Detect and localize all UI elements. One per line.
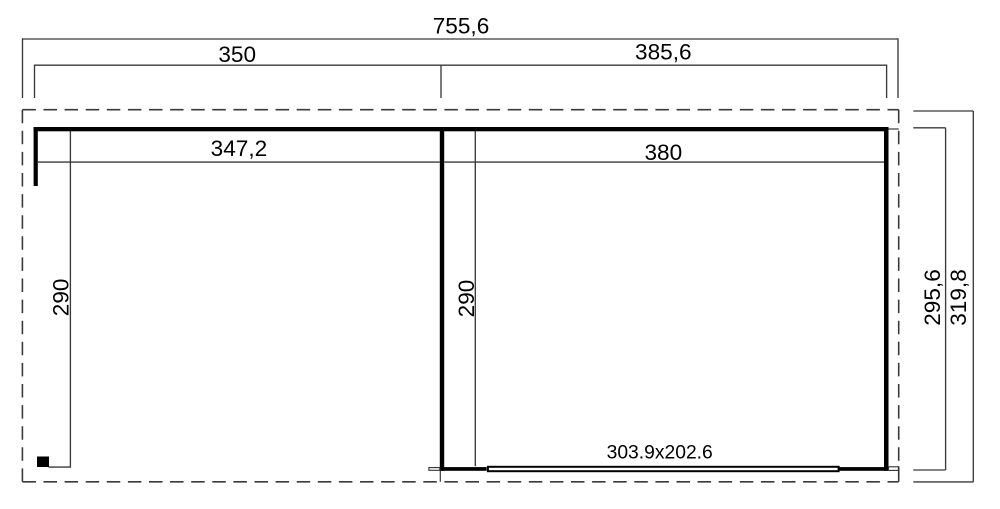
svg-text:380: 380 xyxy=(644,140,682,165)
svg-text:290: 290 xyxy=(454,280,479,318)
svg-text:295,6: 295,6 xyxy=(920,269,945,326)
svg-text:303.9x202.6: 303.9x202.6 xyxy=(607,442,713,463)
svg-text:290: 290 xyxy=(49,279,74,317)
svg-text:385,6: 385,6 xyxy=(635,40,692,65)
svg-text:347,2: 347,2 xyxy=(211,136,268,161)
svg-text:319,8: 319,8 xyxy=(946,269,971,326)
svg-text:755,6: 755,6 xyxy=(433,13,490,38)
svg-text:350: 350 xyxy=(218,42,256,67)
